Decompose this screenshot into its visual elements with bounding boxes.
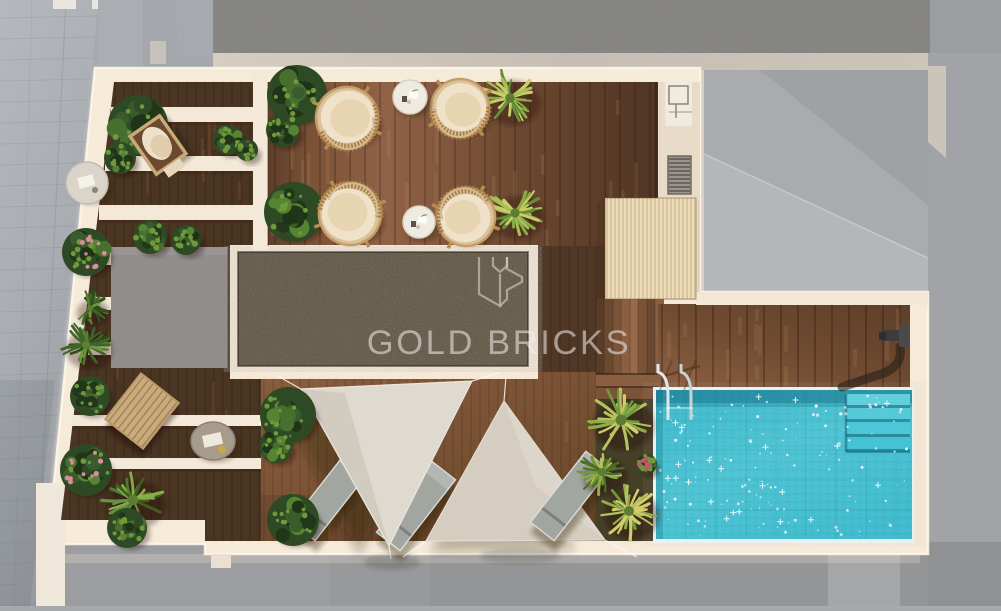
svg-text:GOLD BRICKS: GOLD BRICKS bbox=[367, 324, 631, 362]
